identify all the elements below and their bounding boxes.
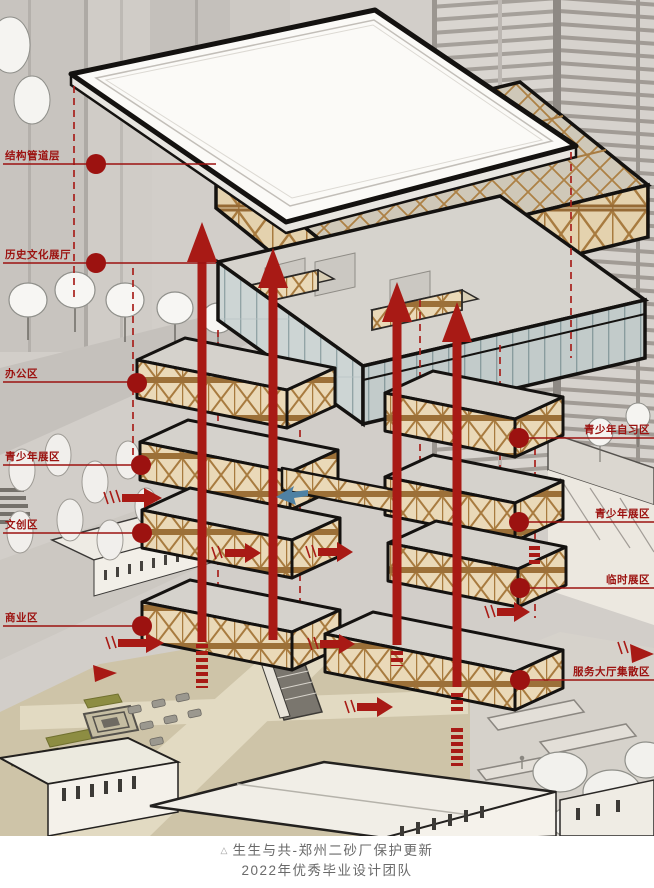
triangle-marker: △ [221, 845, 228, 855]
callout-dot [510, 578, 530, 598]
label-cultural-creative-zone: 文创区 [4, 518, 38, 531]
caption-line2: 2022年优秀毕业设计团队 [0, 861, 654, 881]
label-youth-exhibition-left: 青少年展区 [5, 450, 60, 463]
caption-title: 生生与共-郑州二砂厂保护更新 [232, 843, 433, 858]
label-commercial-zone: 商业区 [5, 611, 38, 624]
callout-dot [86, 154, 106, 174]
callout-dot [509, 428, 529, 448]
callout-dot [510, 670, 530, 690]
flow-hatch [529, 545, 540, 565]
label-structure-pipe-layer: 结构管道层 [5, 149, 60, 162]
callout-dot [132, 616, 152, 636]
callout-dot [131, 455, 151, 475]
label-youth-study-zone: 青少年自习区 [584, 423, 650, 436]
callout-dot [86, 253, 106, 273]
label-history-culture-hall: 历史文化展厅 [5, 248, 71, 261]
label-service-hall-zone: 服务大厅集散区 [573, 665, 650, 678]
label-temporary-exhibition: 临时展区 [606, 573, 650, 586]
caption: △生生与共-郑州二砂厂保护更新 2022年优秀毕业设计团队 [0, 836, 654, 888]
label-youth-exhibition-right: 青少年展区 [595, 507, 650, 520]
axonometric-diagram: 结构管道层 历史文化展厅 办公区 青少年展区 文创区 商业区 青少年自习区 青少… [0, 0, 654, 836]
callout-dot [132, 523, 152, 543]
caption-line1: △生生与共-郑州二砂厂保护更新 [0, 840, 654, 861]
label-office-zone: 办公区 [5, 367, 38, 380]
callout-dot [509, 512, 529, 532]
callout-dot [127, 373, 147, 393]
poster-page: 结构管道层 历史文化展厅 办公区 青少年展区 文创区 商业区 青少年自习区 青少… [0, 0, 654, 888]
